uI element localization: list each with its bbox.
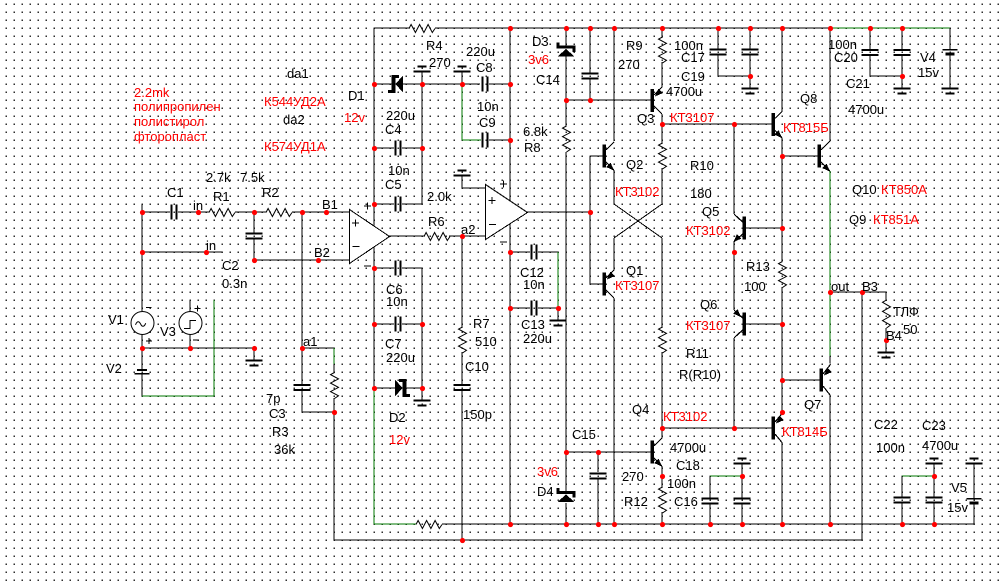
svg-text:R6: R6: [428, 214, 445, 229]
svg-text:ТЛФ: ТЛФ: [893, 304, 919, 319]
svg-text:C3: C3: [269, 406, 286, 421]
svg-text:КТ3107: КТ3107: [615, 278, 659, 293]
svg-text:0.3n: 0.3n: [222, 276, 247, 291]
svg-text:R1: R1: [213, 189, 230, 204]
svg-text:КТ3102: КТ3102: [686, 223, 730, 238]
svg-text:R8: R8: [524, 140, 541, 155]
svg-text:100: 100: [744, 279, 766, 294]
svg-text:4700u: 4700u: [848, 102, 884, 117]
svg-text:7p: 7p: [266, 391, 280, 406]
svg-text:КТ3107: КТ3107: [686, 318, 730, 333]
svg-text:C2: C2: [222, 258, 239, 273]
svg-text:10n: 10n: [388, 163, 410, 178]
svg-text:R3: R3: [272, 424, 289, 439]
svg-text:B3: B3: [862, 279, 878, 294]
svg-text:R12: R12: [624, 494, 648, 509]
svg-text:10n: 10n: [523, 277, 545, 292]
svg-text:270: 270: [429, 55, 451, 70]
svg-text:da2: da2: [283, 112, 305, 127]
svg-text:out: out: [831, 279, 849, 294]
svg-text:Q10: Q10: [852, 182, 877, 197]
svg-text:B4: B4: [886, 328, 902, 343]
svg-text:270: 270: [618, 57, 640, 72]
svg-text:220u: 220u: [466, 44, 495, 59]
svg-text:B2: B2: [314, 245, 330, 260]
svg-text:B1: B1: [322, 197, 338, 212]
svg-text:6.8k: 6.8k: [523, 124, 548, 139]
svg-text:D4: D4: [537, 484, 554, 499]
svg-text:7.5k: 7.5k: [240, 170, 265, 185]
svg-text:3v6: 3v6: [528, 52, 549, 67]
svg-text:220u: 220u: [386, 108, 415, 123]
svg-text:2.7k: 2.7k: [206, 170, 231, 185]
svg-text:C20: C20: [834, 50, 858, 65]
svg-text:a2: a2: [461, 222, 475, 237]
svg-text:V5: V5: [951, 480, 967, 495]
svg-text:КТ3107: КТ3107: [670, 110, 714, 125]
svg-text:D3: D3: [532, 34, 549, 49]
svg-text:2.0k: 2.0k: [427, 189, 452, 204]
svg-text:Q1: Q1: [626, 263, 643, 278]
svg-text:R10: R10: [690, 158, 714, 173]
svg-text:180: 180: [690, 186, 712, 201]
svg-text:50: 50: [903, 322, 917, 337]
svg-text:15v: 15v: [947, 500, 968, 515]
svg-text:КТ850А: КТ850А: [881, 182, 927, 197]
svg-text:3v6: 3v6: [537, 464, 558, 479]
svg-text:510: 510: [475, 334, 497, 349]
svg-text:150p: 150p: [463, 407, 492, 422]
svg-text:Q4: Q4: [632, 402, 649, 417]
svg-text:C18: C18: [676, 458, 700, 473]
svg-text:4700u: 4700u: [670, 440, 706, 455]
svg-text:Q7: Q7: [804, 397, 821, 412]
svg-text:R2: R2: [262, 185, 279, 200]
svg-text:a1: a1: [303, 334, 317, 349]
svg-text:in: in: [206, 238, 216, 253]
svg-text:C1: C1: [167, 185, 184, 200]
svg-text:КТ3102: КТ3102: [663, 409, 707, 424]
svg-text:Q5: Q5: [702, 204, 719, 219]
svg-text:R(R10): R(R10): [679, 367, 721, 382]
svg-text:C19: C19: [681, 69, 705, 84]
svg-text:R13: R13: [746, 259, 770, 274]
svg-text:C21: C21: [846, 76, 870, 91]
svg-text:12v: 12v: [389, 432, 410, 447]
svg-text:15v: 15v: [918, 65, 939, 80]
svg-text:Q2: Q2: [626, 157, 643, 172]
svg-text:К574УД1А: К574УД1А: [264, 139, 326, 154]
svg-text:220u: 220u: [523, 331, 552, 346]
svg-text:C7: C7: [385, 336, 402, 351]
svg-text:К544УД2А: К544УД2А: [264, 94, 326, 109]
svg-text:R11: R11: [686, 346, 709, 361]
svg-text:100n: 100n: [667, 476, 696, 491]
svg-text:КТ814Б: КТ814Б: [782, 424, 828, 439]
svg-text:C9: C9: [479, 115, 496, 130]
svg-text:КТ851А: КТ851А: [873, 212, 919, 227]
svg-text:220u: 220u: [386, 350, 415, 365]
svg-text:C10: C10: [465, 359, 489, 374]
svg-text:полистирол: полистирол: [134, 114, 204, 129]
svg-text:V2: V2: [106, 361, 122, 376]
svg-text:КТ815Б: КТ815Б: [783, 120, 829, 135]
svg-text:C16: C16: [674, 494, 698, 509]
svg-text:R4: R4: [426, 38, 443, 53]
svg-text:100n: 100n: [876, 440, 905, 455]
svg-text:C17: C17: [681, 50, 705, 65]
svg-text:4700u: 4700u: [666, 84, 702, 99]
svg-text:C13: C13: [521, 317, 545, 332]
svg-text:C5: C5: [385, 177, 402, 192]
svg-text:C23: C23: [922, 418, 946, 433]
svg-text:V3: V3: [160, 324, 176, 339]
svg-text:36k: 36k: [274, 442, 295, 457]
svg-text:C8: C8: [476, 60, 493, 75]
svg-text:R9: R9: [626, 38, 643, 53]
svg-text:da1: da1: [287, 66, 309, 81]
svg-text:Q9: Q9: [849, 212, 866, 227]
svg-text:C15: C15: [572, 427, 596, 442]
svg-text:R7: R7: [473, 316, 490, 331]
svg-text:10n: 10n: [386, 294, 408, 309]
svg-text:Q3: Q3: [637, 111, 654, 126]
svg-text:4700u: 4700u: [922, 438, 958, 453]
svg-text:D2: D2: [389, 410, 406, 425]
svg-text:C4: C4: [385, 122, 402, 137]
svg-text:C22: C22: [874, 417, 898, 432]
svg-text:полипропилен: полипропилен: [134, 99, 221, 114]
svg-text:10n: 10n: [477, 99, 499, 114]
svg-text:2.2mk: 2.2mk: [134, 85, 170, 100]
svg-text:КТ3102: КТ3102: [615, 184, 659, 199]
svg-text:D1: D1: [348, 88, 365, 103]
svg-text:Q6: Q6: [700, 297, 717, 312]
svg-text:C14: C14: [536, 72, 560, 87]
svg-text:in: in: [193, 198, 203, 213]
svg-text:12v: 12v: [344, 110, 365, 125]
svg-text:270: 270: [622, 469, 644, 484]
svg-text:V4: V4: [920, 50, 936, 65]
svg-text:фторопласт: фторопласт: [134, 129, 206, 144]
svg-text:V1: V1: [108, 312, 124, 327]
svg-text:Q8: Q8: [800, 91, 817, 106]
